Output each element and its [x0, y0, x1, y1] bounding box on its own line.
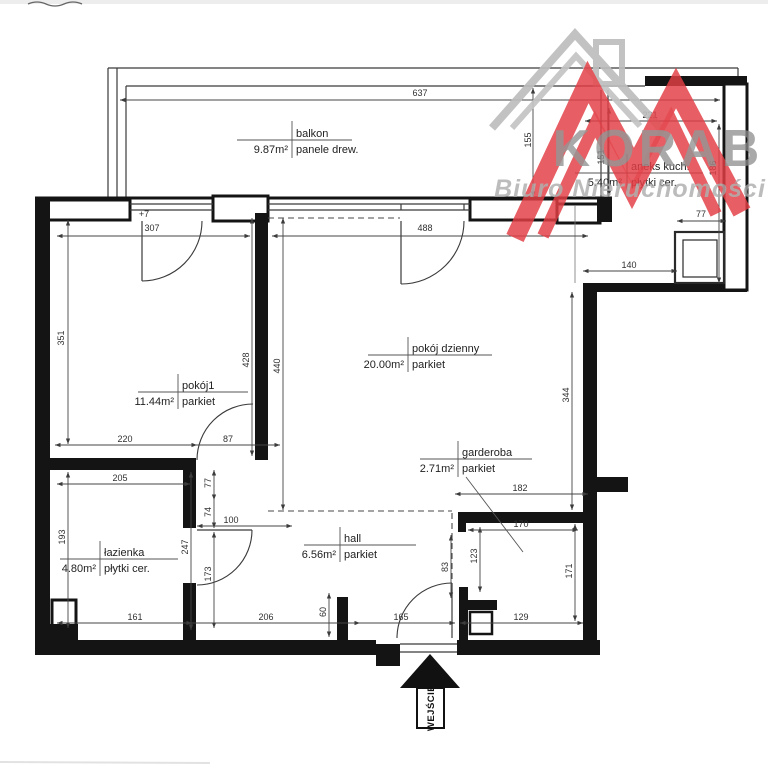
arrow-up-icon [400, 654, 460, 688]
dimension-label: 488 [417, 223, 432, 233]
room-name: pokój1 [182, 380, 214, 392]
dimension-label: 428 [241, 352, 251, 367]
room-name: hall [344, 533, 361, 545]
wardrobe-closet-wall [459, 587, 468, 640]
room-floor: parkiet [412, 359, 445, 371]
dimension-label: 77 [696, 209, 706, 219]
room-floor: parkiet [182, 396, 215, 408]
dimension-label: 440 [272, 358, 282, 373]
room-label: garderoba2.71m²parkiet [420, 441, 532, 552]
entrance-door [397, 583, 452, 638]
room1-living-wall [255, 213, 268, 460]
bathroom-top-wall [50, 458, 188, 470]
brand-text: KORAB [553, 120, 764, 178]
dimension-label: 206 [258, 612, 273, 622]
room-floor: parkiet [344, 549, 377, 561]
room-label: hall6.56m²parkiet [302, 527, 416, 562]
room-area: 6.56m² [302, 549, 337, 561]
floor-plan-scan: 637+730748822177140155151186351428440344… [0, 0, 768, 768]
room-floor: płytki cer. [104, 563, 150, 575]
dimension-label: 637 [412, 88, 427, 98]
room-area: 20.00m² [364, 359, 405, 371]
bathroom-right-wall-lower [183, 583, 196, 640]
right-wall-stub [597, 477, 628, 492]
dimension-label: 83 [440, 562, 450, 572]
dimension-label: 182 [512, 483, 527, 493]
dimension-label: 307 [144, 223, 159, 233]
dimension-label: 170 [513, 519, 528, 529]
wall-pier [37, 200, 130, 220]
dimension-label: 171 [564, 563, 574, 578]
dimension-label: 74 [203, 507, 213, 517]
dimension-label: 173 [203, 566, 213, 581]
dimension-label: 155 [523, 132, 533, 147]
doors [142, 221, 464, 638]
dimension-label: 140 [621, 260, 636, 270]
room-area: 2.71m² [420, 463, 455, 475]
room1-door [197, 404, 253, 460]
floor-plan-drawing: 637+730748822177140155151186351428440344… [0, 0, 768, 768]
room-area: 11.44m² [134, 396, 174, 408]
bottom-wall-right [457, 640, 600, 655]
room-label: łazienka4.80m²płytki cer. [60, 541, 178, 576]
bathroom-right-wall-upper [183, 458, 196, 528]
dimension-label: 60 [318, 607, 328, 617]
dimension-label: 220 [117, 434, 132, 444]
dimension-label: 77 [203, 478, 213, 488]
wall-pier [557, 204, 600, 223]
room-floor: parkiet [462, 463, 495, 475]
room-name: balkon [296, 128, 328, 140]
entrance-label: WEJŚCIE [425, 685, 437, 731]
entrance-arrow: WEJŚCIE [400, 654, 460, 731]
dimension-label: 123 [469, 548, 479, 563]
bottom-wall-left [35, 640, 376, 655]
dimension-label: 129 [513, 612, 528, 622]
room-area: 4.80m² [62, 563, 97, 575]
room-name: łazienka [104, 547, 145, 559]
dimension-label: 351 [56, 330, 66, 345]
room-name: garderoba [462, 447, 513, 459]
dimension-label: +7 [139, 209, 149, 219]
brand-subtitle: Biuro Nieruchomości [494, 175, 766, 203]
right-wall [583, 283, 597, 655]
dimension-label: 205 [112, 473, 127, 483]
dimension-label: 247 [180, 539, 190, 554]
dimension-label: 165 [393, 612, 408, 622]
open-boundaries [268, 511, 452, 638]
left-wall [35, 197, 50, 655]
dimension-label: 344 [561, 387, 571, 402]
room-label: pokój111.44m²parkiet [134, 374, 248, 409]
kitchen-bottom-wall [583, 283, 747, 292]
room-floor: panele drew. [296, 144, 358, 156]
dimension-label: 161 [127, 612, 142, 622]
room-name: pokój dzienny [412, 343, 480, 355]
dimension-label: 87 [223, 434, 233, 444]
room-area: 9.87m² [254, 144, 289, 156]
dimension-label: 193 [57, 529, 67, 544]
room-label: pokój dzienny20.00m²parkiet [364, 337, 492, 372]
hall-wall-stub [337, 597, 348, 640]
room-label: balkon9.87m²panele drew. [237, 121, 358, 158]
dimension-label: 100 [223, 515, 238, 525]
entrance-step [376, 644, 400, 666]
